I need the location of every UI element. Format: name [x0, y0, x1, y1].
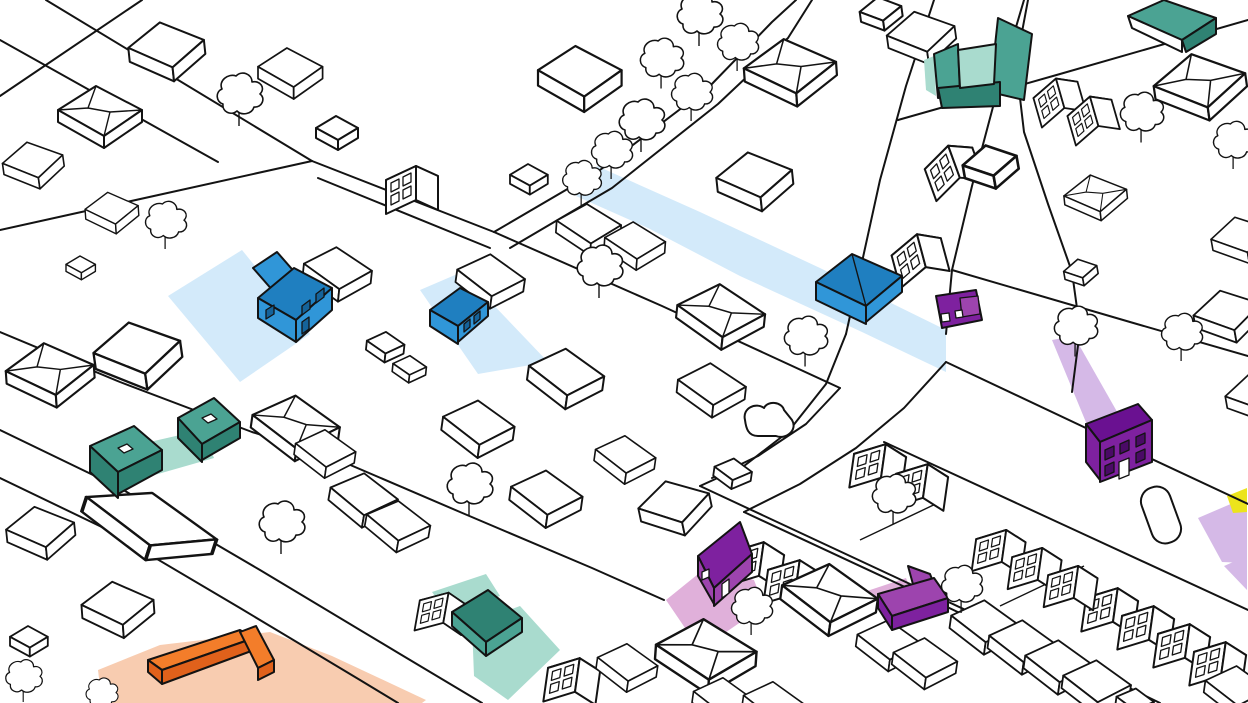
- building: [365, 330, 406, 364]
- building: [593, 640, 660, 696]
- building: [1222, 367, 1248, 428]
- tree: [577, 245, 623, 298]
- tree: [447, 463, 493, 516]
- village-map: [0, 0, 1248, 703]
- tree: [677, 0, 723, 46]
- tree: [146, 201, 187, 249]
- building: [258, 48, 323, 99]
- building: [438, 396, 517, 462]
- building: [84, 190, 140, 236]
- building: [4, 503, 78, 564]
- pond: [745, 403, 794, 437]
- building: [674, 360, 748, 421]
- tree: [259, 501, 305, 554]
- building: [510, 164, 548, 195]
- pool-court: [1137, 483, 1185, 548]
- building: [673, 280, 768, 354]
- tree: [1120, 92, 1163, 142]
- building: [591, 432, 658, 488]
- purple-outbuilding-east: [936, 290, 982, 328]
- building: [66, 256, 95, 280]
- building: [4, 340, 97, 411]
- building: [543, 654, 601, 703]
- building: [58, 86, 142, 148]
- tree: [1214, 121, 1248, 169]
- building: [126, 18, 208, 86]
- building: [74, 474, 224, 579]
- building: [80, 579, 156, 641]
- village-map-canvas: [0, 0, 1248, 703]
- building: [386, 166, 438, 214]
- building: [1062, 171, 1130, 224]
- building: [316, 116, 358, 150]
- building: [0, 138, 67, 194]
- building: [739, 678, 806, 703]
- teal-courtyard-lot: [958, 44, 996, 88]
- building: [1150, 47, 1248, 127]
- tree: [732, 587, 773, 635]
- building: [10, 626, 48, 657]
- building: [538, 46, 622, 112]
- building: [506, 466, 585, 532]
- building: [714, 148, 796, 216]
- teal-roof-corner-northeast: [1128, 0, 1216, 52]
- bush: [6, 660, 43, 702]
- purple-l-building-south: [878, 566, 948, 630]
- building: [90, 316, 186, 396]
- tree: [784, 316, 827, 366]
- teal-house-west-a: [90, 426, 162, 498]
- building: [1208, 211, 1248, 269]
- building: [391, 354, 427, 385]
- tree: [1162, 313, 1203, 361]
